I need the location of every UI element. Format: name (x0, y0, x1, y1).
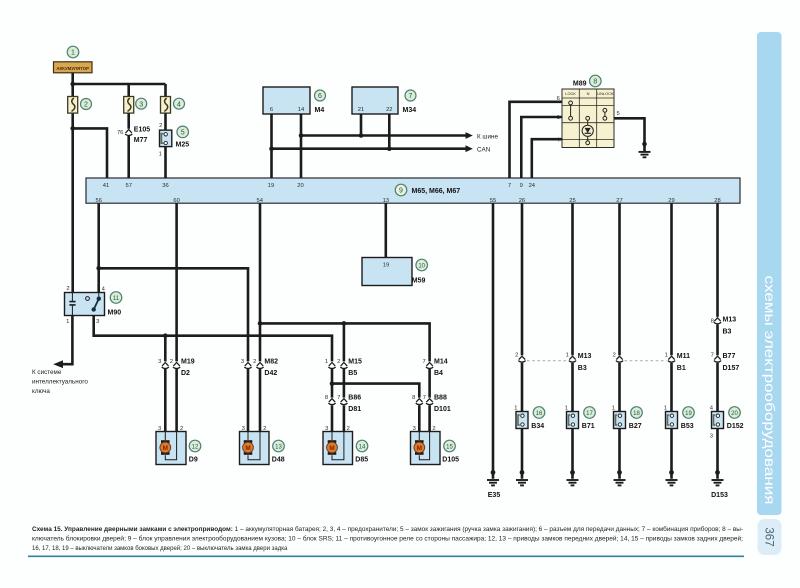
svg-text:2: 2 (253, 359, 256, 365)
svg-text:CAN: CAN (477, 147, 491, 154)
svg-text:5: 5 (181, 130, 185, 137)
svg-text:8: 8 (412, 395, 415, 401)
svg-text:36: 36 (162, 183, 168, 189)
svg-text:3: 3 (325, 426, 328, 432)
svg-text:D48: D48 (272, 457, 285, 464)
svg-text:26: 26 (519, 198, 525, 204)
svg-text:20: 20 (731, 411, 738, 417)
svg-text:ключа: ключа (32, 388, 50, 395)
svg-text:2: 2 (66, 286, 69, 292)
svg-text:M13: M13 (723, 316, 737, 323)
svg-text:41: 41 (103, 183, 109, 189)
svg-text:2: 2 (180, 426, 183, 432)
svg-text:2: 2 (159, 123, 162, 129)
svg-text:9: 9 (520, 183, 523, 189)
svg-text:19: 19 (685, 411, 692, 417)
svg-text:57: 57 (125, 183, 131, 189)
svg-text:M19: M19 (181, 358, 195, 365)
svg-text:20: 20 (297, 183, 303, 189)
svg-text:E105: E105 (134, 126, 150, 133)
svg-text:7: 7 (337, 395, 340, 401)
svg-text:2: 2 (170, 359, 173, 365)
svg-text:3: 3 (710, 434, 713, 440)
svg-text:10: 10 (418, 263, 425, 269)
svg-text:55: 55 (490, 198, 496, 204)
svg-text:B53: B53 (681, 423, 694, 430)
svg-text:LOCK: LOCK (565, 91, 576, 96)
svg-text:АККУМУЛЯТОР: АККУМУЛЯТОР (56, 66, 89, 71)
svg-text:24: 24 (529, 183, 536, 189)
svg-text:17: 17 (586, 411, 593, 417)
svg-text:D81: D81 (348, 406, 361, 413)
svg-text:8: 8 (711, 318, 714, 324)
svg-text:7: 7 (423, 395, 426, 401)
svg-text:25: 25 (569, 198, 575, 204)
svg-text:M59: M59 (412, 278, 426, 285)
svg-text:14: 14 (359, 444, 366, 450)
svg-text:D2: D2 (181, 370, 190, 377)
svg-text:M65, M66, M67: M65, M66, M67 (412, 188, 461, 195)
svg-text:3: 3 (158, 359, 161, 365)
svg-text:7: 7 (409, 93, 413, 100)
svg-text:6: 6 (318, 93, 322, 100)
svg-text:D153: D153 (711, 492, 728, 499)
svg-text:2: 2 (515, 353, 518, 359)
svg-text:3: 3 (241, 359, 244, 365)
svg-text:Схема 15. Управление дверными: Схема 15. Управление дверными замками с … (32, 527, 743, 533)
svg-text:B5: B5 (348, 370, 357, 377)
svg-text:N: N (587, 91, 590, 96)
svg-text:D9: D9 (189, 457, 198, 464)
svg-text:M: M (417, 445, 422, 452)
svg-text:E35: E35 (488, 492, 501, 499)
svg-text:11: 11 (113, 296, 120, 302)
svg-text:3: 3 (242, 426, 245, 432)
svg-text:56: 56 (95, 198, 101, 204)
svg-text:UNLOCK: UNLOCK (597, 91, 614, 96)
svg-text:12: 12 (192, 444, 199, 450)
svg-text:19: 19 (383, 263, 389, 269)
svg-text:B27: B27 (629, 423, 642, 430)
svg-text:D105: D105 (442, 457, 459, 464)
svg-text:M90: M90 (108, 310, 122, 317)
svg-text:B77: B77 (723, 353, 736, 360)
svg-text:B34: B34 (531, 423, 544, 430)
svg-text:2: 2 (84, 102, 88, 109)
svg-text:D152: D152 (727, 423, 744, 430)
svg-text:2: 2 (432, 426, 435, 432)
svg-text:4: 4 (177, 101, 181, 108)
svg-text:B3: B3 (723, 329, 732, 336)
svg-text:1: 1 (325, 359, 328, 365)
svg-text:M13: M13 (578, 353, 592, 360)
svg-text:M: M (163, 445, 168, 452)
svg-text:13: 13 (275, 444, 282, 450)
svg-text:19: 19 (268, 183, 274, 189)
svg-text:13: 13 (383, 198, 389, 204)
svg-text:B3: B3 (578, 365, 587, 372)
svg-text:16, 17, 18, 19 – выключатели з: 16, 17, 18, 19 – выключатели замков боко… (32, 545, 288, 552)
svg-text:К шине: К шине (477, 133, 498, 140)
svg-text:К системе: К системе (32, 369, 62, 376)
svg-text:M82: M82 (264, 358, 278, 365)
svg-text:1: 1 (66, 319, 69, 325)
svg-text:7: 7 (711, 353, 714, 359)
svg-text:B71: B71 (582, 423, 595, 430)
svg-text:14: 14 (298, 107, 305, 113)
svg-text:16: 16 (536, 411, 543, 417)
svg-text:B1: B1 (677, 365, 686, 372)
svg-text:54: 54 (256, 198, 263, 204)
svg-text:1: 1 (664, 406, 667, 412)
svg-text:1: 1 (565, 406, 568, 412)
svg-text:D42: D42 (264, 370, 277, 377)
svg-text:1: 1 (159, 151, 162, 157)
svg-text:8: 8 (325, 395, 328, 401)
svg-text:3: 3 (139, 101, 143, 108)
svg-text:18: 18 (633, 411, 640, 417)
svg-text:B88: B88 (434, 395, 447, 402)
svg-text:3: 3 (158, 426, 161, 432)
svg-text:6: 6 (270, 107, 273, 113)
svg-text:D85: D85 (355, 457, 368, 464)
svg-text:21: 21 (358, 107, 364, 113)
svg-text:M15: M15 (348, 358, 362, 365)
svg-text:367: 367 (763, 527, 775, 546)
svg-text:1: 1 (514, 406, 517, 412)
svg-text:M34: M34 (403, 107, 417, 114)
svg-text:1: 1 (71, 50, 75, 57)
svg-text:M: M (329, 445, 334, 452)
svg-text:D101: D101 (434, 406, 451, 413)
svg-text:76: 76 (117, 130, 123, 136)
svg-text:3: 3 (413, 426, 416, 432)
svg-text:M4: M4 (315, 107, 325, 114)
svg-text:60: 60 (173, 198, 179, 204)
svg-text:B86: B86 (348, 395, 361, 402)
svg-text:M89: M89 (573, 81, 587, 88)
svg-text:3: 3 (96, 319, 99, 325)
svg-text:5: 5 (617, 111, 620, 117)
svg-text:1: 1 (665, 353, 668, 359)
svg-text:ключатель блокировки дверей; 9: ключатель блокировки дверей; 9 – блок уп… (32, 536, 743, 543)
svg-text:7: 7 (422, 359, 425, 365)
svg-text:2: 2 (337, 359, 340, 365)
svg-text:2: 2 (613, 353, 616, 359)
svg-text:M77: M77 (134, 137, 148, 144)
svg-text:D157: D157 (723, 365, 740, 372)
svg-text:22: 22 (386, 107, 392, 113)
svg-text:7: 7 (508, 183, 511, 189)
svg-text:1: 1 (566, 353, 569, 359)
svg-text:схемы электрооборудования: схемы электрооборудования (761, 276, 777, 505)
svg-text:8: 8 (593, 79, 597, 86)
svg-text:28: 28 (714, 198, 720, 204)
svg-text:9: 9 (399, 188, 403, 195)
svg-text:M: M (245, 445, 250, 452)
svg-text:B4: B4 (434, 370, 443, 377)
svg-text:M25: M25 (176, 142, 190, 149)
svg-text:интеллектуального: интеллектуального (32, 379, 88, 386)
svg-text:2: 2 (347, 426, 350, 432)
svg-text:27: 27 (616, 198, 622, 204)
svg-text:15: 15 (446, 444, 453, 450)
svg-text:M14: M14 (434, 358, 448, 365)
svg-text:1: 1 (612, 406, 615, 412)
svg-text:29: 29 (668, 198, 674, 204)
svg-text:M11: M11 (677, 353, 690, 360)
svg-text:2: 2 (263, 426, 266, 432)
